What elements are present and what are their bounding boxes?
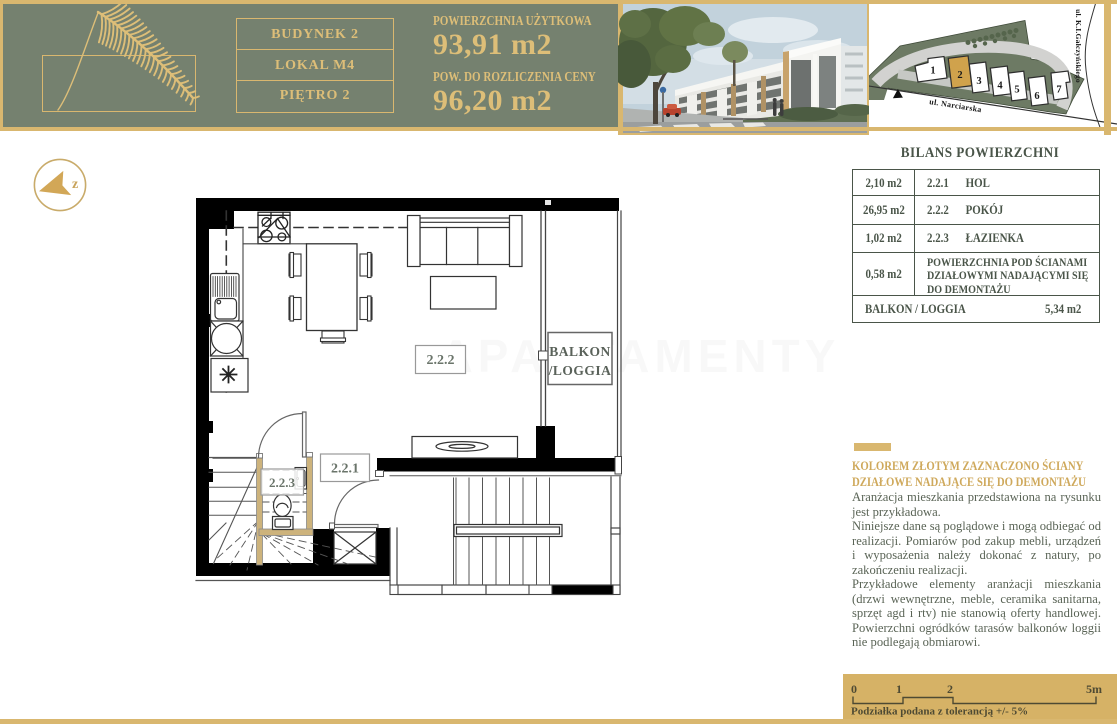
svg-text:1: 1 bbox=[896, 682, 902, 696]
svg-text:2.2.1: 2.2.1 bbox=[331, 462, 359, 477]
svg-text:2.2.2: 2.2.2 bbox=[427, 353, 455, 368]
svg-text:2.2.3: 2.2.3 bbox=[269, 475, 296, 490]
svg-text:APARTAMENTY: APARTAMENTY bbox=[440, 330, 841, 382]
svg-text:Podziałka podana z tolerancją: Podziałka podana z tolerancją +/- 5% bbox=[851, 706, 1028, 718]
svg-text:0: 0 bbox=[851, 682, 857, 696]
svg-text:/LOGGIA: /LOGGIA bbox=[548, 363, 612, 378]
svg-text:BALKON: BALKON bbox=[549, 344, 611, 359]
svg-text:2: 2 bbox=[947, 682, 953, 696]
svg-text:5m: 5m bbox=[1086, 682, 1102, 696]
